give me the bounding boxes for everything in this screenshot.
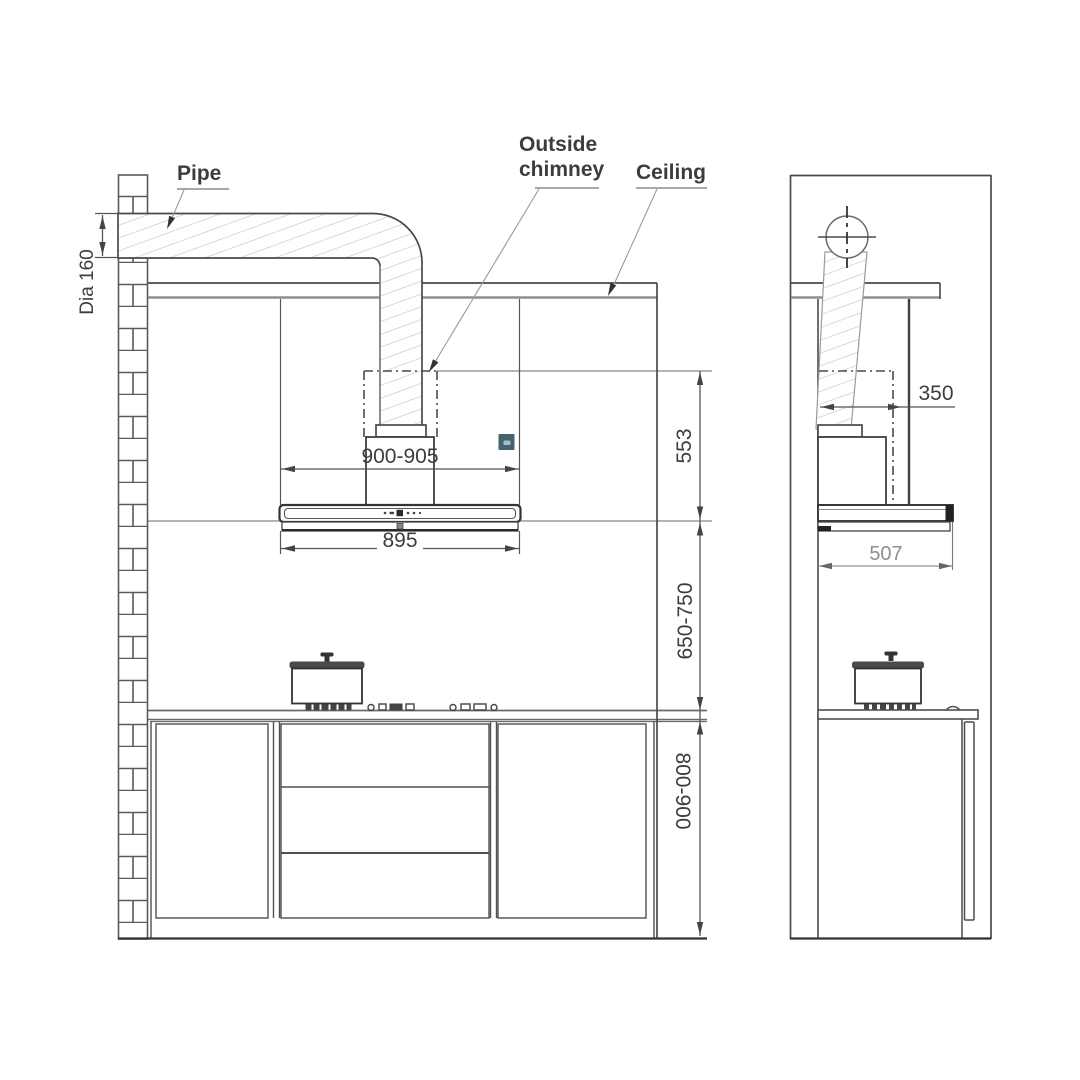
chimney-side xyxy=(818,425,886,505)
hood-front xyxy=(280,505,521,531)
counter-cabinet-side xyxy=(818,707,978,939)
hood-depth-dimension: 507 xyxy=(856,543,916,566)
cabinet-door-side xyxy=(965,722,975,920)
duct-pipe-side xyxy=(816,252,867,429)
reference-lines-front xyxy=(148,371,712,722)
pipe-diameter-dimension: Dia 160 xyxy=(77,242,99,322)
small-blue-marker-icon xyxy=(499,434,515,450)
chimney-depth-dimension: 350 xyxy=(906,382,966,406)
duct-pipe-front xyxy=(118,214,422,429)
ceiling-leader-arrow xyxy=(605,283,616,297)
pot-side xyxy=(852,652,924,704)
chimney-zone-height-dimension: 553 xyxy=(673,421,695,471)
pot-front xyxy=(290,653,365,704)
cabinet-drawer-stack xyxy=(281,724,489,918)
front-view-linework xyxy=(95,175,712,939)
vertical-dimension-line xyxy=(697,371,703,936)
pipe-label: Pipe xyxy=(177,161,221,186)
counter-height-dimension: 800-900 xyxy=(672,746,694,836)
ceiling-side xyxy=(791,283,940,299)
installation-diagram: Pipe Outside chimney Ceiling Dia 160 900… xyxy=(0,0,1080,1080)
cooktop-side xyxy=(864,704,916,710)
outside-chimney-label: Outside chimney xyxy=(519,132,639,182)
ceiling-label: Ceiling xyxy=(636,160,706,185)
hood-to-counter-dimension: 650-750 xyxy=(674,576,696,666)
cabinet-left-door xyxy=(156,724,268,918)
base-cabinet-front xyxy=(151,721,654,938)
hood-body-width-dimension: 895 xyxy=(370,529,430,553)
hood-side xyxy=(818,505,953,531)
brick-wall xyxy=(119,175,148,939)
cooktop-front xyxy=(306,704,497,711)
cabinet-right-door xyxy=(498,724,646,918)
hood-width-range-dimension: 900-905 xyxy=(355,445,445,469)
